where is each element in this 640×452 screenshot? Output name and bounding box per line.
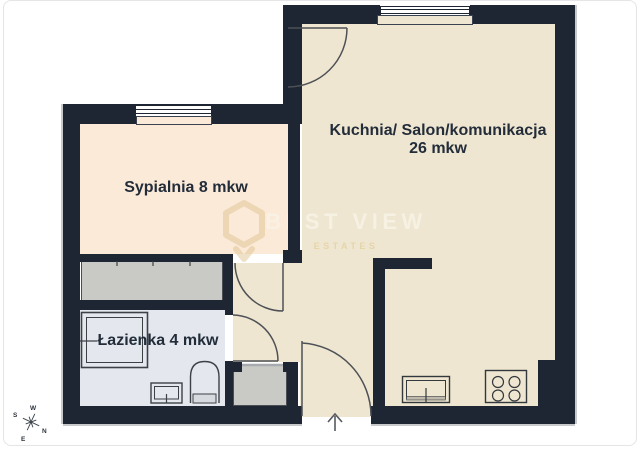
bedroom-label: Sypialnia 8 mkw (124, 179, 248, 197)
bathroom-label: Łazienka 4 mkw (98, 332, 219, 350)
bedroom-door (235, 263, 283, 311)
kitchen-sink (403, 377, 450, 404)
wardrobe-ticks (117, 261, 190, 266)
kitchen-salon-name: Kuchnia/ Salon/komunikacja (330, 122, 547, 140)
compass-rose-icon: W S N E (13, 405, 47, 443)
toilet (191, 362, 220, 404)
compass-e: E (21, 436, 26, 443)
kitchen-salon-label: Kuchnia/ Salon/komunikacja 26 mkw (330, 122, 547, 158)
kitchen-salon-area: 26 mkw (330, 140, 547, 158)
entrance-door (302, 341, 371, 416)
bathroom-sink (151, 383, 182, 403)
compass-w: W (30, 405, 37, 412)
stove (486, 371, 527, 403)
balcony-door (288, 28, 347, 87)
floorplan-canvas: BEST VIEW ESTATES (0, 0, 640, 452)
entrance-arrow-icon (328, 414, 342, 431)
bathroom-door (233, 315, 278, 361)
compass-n: N (42, 428, 47, 435)
plan-linework: W S N E (0, 0, 640, 452)
compass-s: S (13, 412, 18, 419)
